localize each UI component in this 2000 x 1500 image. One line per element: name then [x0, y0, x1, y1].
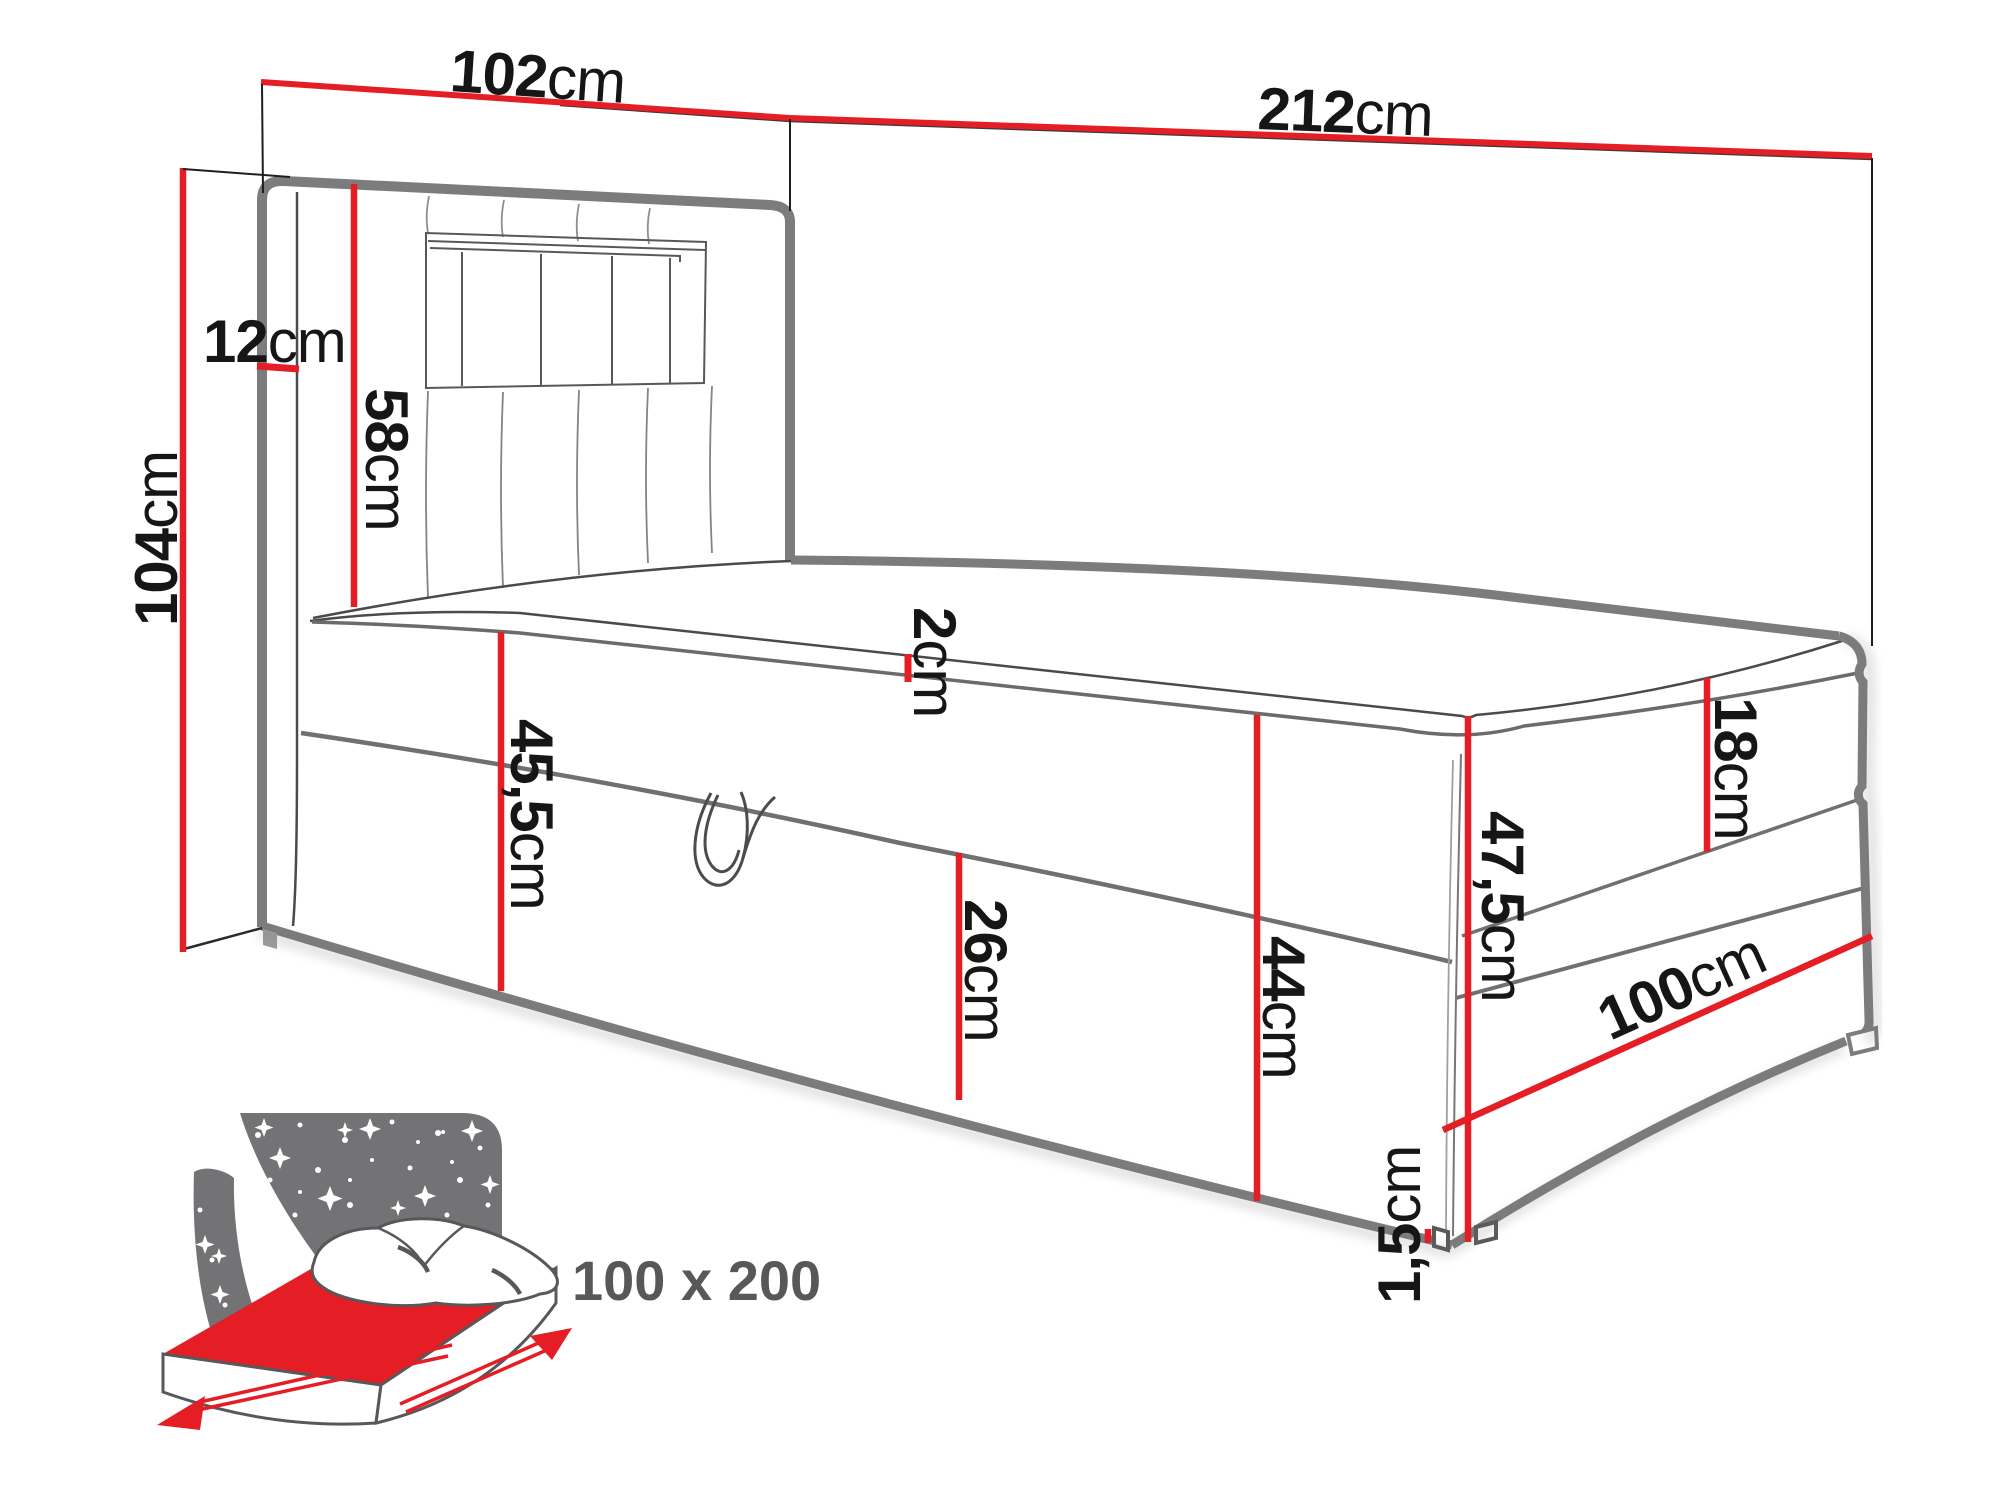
- svg-text:18cm: 18cm: [1702, 697, 1769, 840]
- svg-text:26cm: 26cm: [952, 899, 1019, 1042]
- svg-text:44cm: 44cm: [1250, 936, 1317, 1079]
- svg-text:100 x 200: 100 x 200: [572, 1249, 821, 1312]
- svg-text:212cm: 212cm: [1256, 75, 1434, 149]
- svg-text:47,5cm: 47,5cm: [1469, 811, 1536, 1002]
- svg-text:102cm: 102cm: [448, 37, 627, 116]
- svg-text:12cm: 12cm: [203, 308, 346, 375]
- svg-text:45,5cm: 45,5cm: [498, 719, 565, 910]
- svg-text:104cm: 104cm: [123, 451, 190, 626]
- svg-text:1,5cm: 1,5cm: [1366, 1146, 1433, 1304]
- svg-text:58cm: 58cm: [353, 388, 420, 531]
- svg-text:2cm: 2cm: [901, 607, 968, 717]
